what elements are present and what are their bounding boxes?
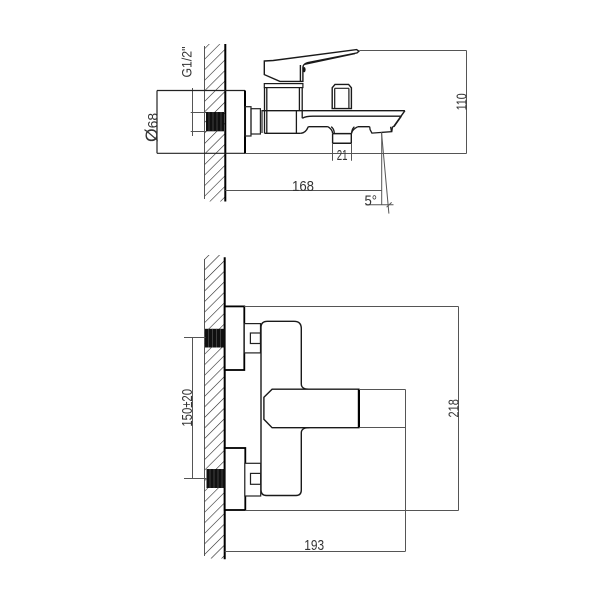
svg-text:5°: 5° bbox=[365, 193, 378, 210]
svg-text:21: 21 bbox=[337, 147, 348, 164]
svg-text:110: 110 bbox=[454, 93, 471, 110]
svg-text:218: 218 bbox=[445, 399, 462, 417]
svg-text:150±20: 150±20 bbox=[179, 389, 196, 427]
svg-text:G1/2": G1/2" bbox=[180, 46, 195, 77]
svg-text:193: 193 bbox=[304, 537, 324, 554]
svg-text:Ø68: Ø68 bbox=[142, 113, 162, 142]
svg-text:168: 168 bbox=[292, 178, 314, 195]
